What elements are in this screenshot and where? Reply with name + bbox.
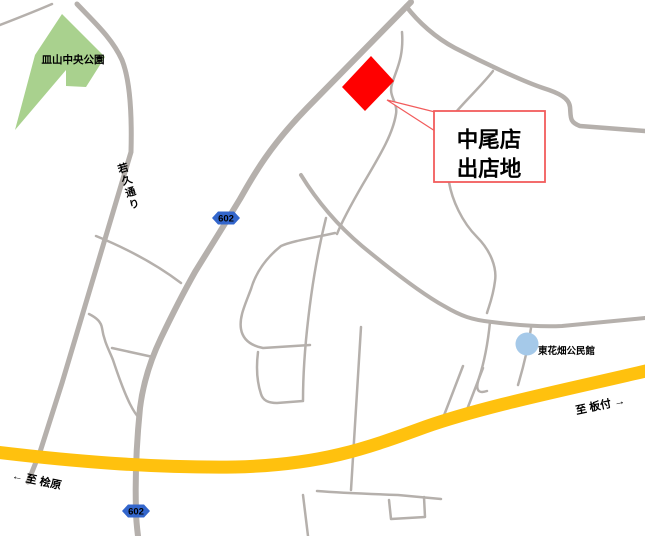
road-connector-short bbox=[112, 348, 153, 357]
road-bottom-stub bbox=[303, 495, 308, 536]
park-area bbox=[15, 14, 105, 130]
route-badge-number: 602 bbox=[128, 507, 144, 518]
road-scurve-below-callout bbox=[449, 182, 495, 313]
road-connector-upper bbox=[96, 236, 181, 283]
direction-label-right: 至 板付 → bbox=[574, 393, 626, 417]
road-lower-vertical bbox=[351, 327, 361, 490]
facility-label: 東花畑公民館 bbox=[537, 345, 596, 357]
road-bottom-loop bbox=[389, 497, 425, 519]
road-bottom-horizontal bbox=[317, 491, 441, 499]
route-badge-number: 602 bbox=[218, 214, 234, 225]
road-topleft-curve bbox=[0, 4, 52, 25]
park-label: 皿山中央公園 bbox=[42, 53, 105, 66]
road-center-block bbox=[241, 233, 335, 348]
route-602-badge-lower: 602 bbox=[122, 505, 150, 518]
facility-circle bbox=[516, 333, 539, 356]
road-stub-left-of-circle bbox=[477, 322, 490, 392]
road-hook-lower-left bbox=[257, 352, 303, 403]
map-canvas: 中尾店 出店地 皿山中央公園 若久通り 東花畑公民館 602 602 ← 至 桧… bbox=[0, 0, 645, 536]
road-east-horizontal bbox=[301, 175, 645, 326]
map-stage: 中尾店 出店地 皿山中央公園 若久通り 東花畑公民館 602 602 ← 至 桧… bbox=[0, 0, 645, 536]
direction-label-left: ← 至 桧原 bbox=[11, 468, 63, 492]
route-602-badge-upper: 602 bbox=[212, 212, 240, 225]
store-callout-line1: 中尾店 bbox=[457, 128, 522, 152]
road-connector-wiggly bbox=[89, 314, 140, 419]
highway-road bbox=[0, 370, 645, 467]
road-center-vertical bbox=[303, 218, 326, 400]
store-callout-line2: 出店地 bbox=[457, 157, 522, 181]
